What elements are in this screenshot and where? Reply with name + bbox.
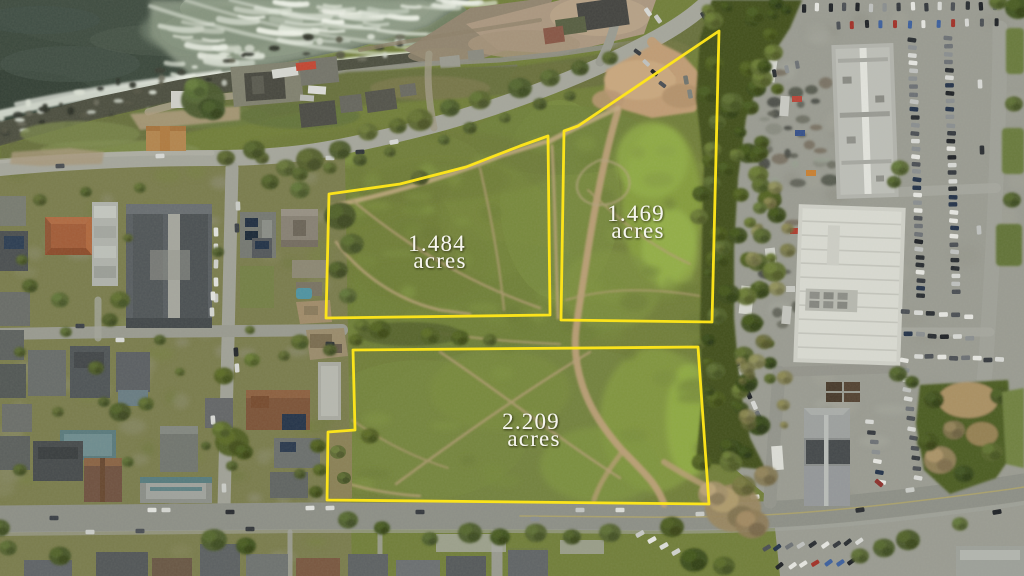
svg-text:acres: acres (507, 426, 560, 451)
svg-text:acres: acres (611, 218, 664, 243)
svg-text:acres: acres (413, 248, 466, 273)
